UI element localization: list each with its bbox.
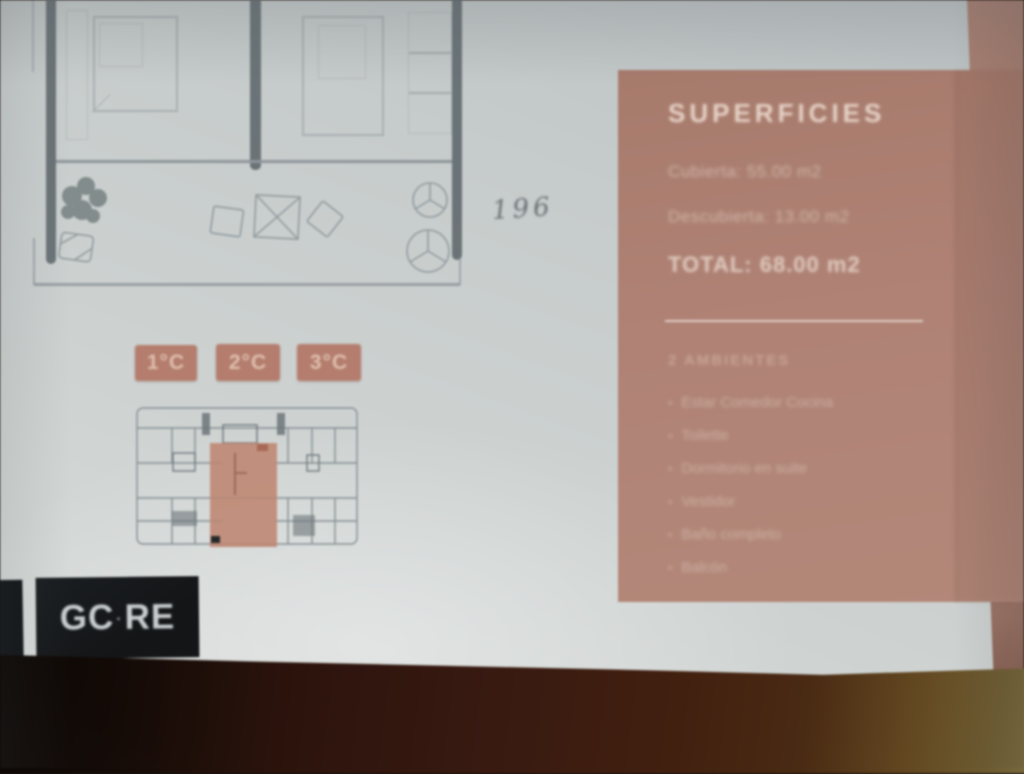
wall-center — [250, 0, 261, 170]
closet-left — [66, 10, 88, 140]
round-chair-icon — [413, 183, 447, 217]
keyplan-highlight-mark — [257, 444, 268, 451]
wardrobe-shelf-line2 — [409, 92, 451, 94]
paper-background: 196 1°C 2°C 3°C SUPERFICIES Cubierta: — [0, 0, 1024, 768]
square-chair-icon — [210, 206, 243, 237]
bed-left-pillow — [99, 23, 143, 67]
ambientes-heading: 2 AMBIENTES — [668, 352, 790, 369]
ambientes-item: • Baño completo — [668, 526, 781, 545]
bullet-icon: • — [668, 526, 672, 545]
area-row-total: TOTAL: 68.00 m2 — [668, 252, 861, 278]
panel-divider — [665, 320, 923, 322]
terrace-furniture-group — [30, 148, 470, 298]
keyplan-highlight-unit — [210, 443, 277, 547]
logo-separator-icon: · — [114, 610, 125, 628]
plant-icon — [61, 177, 107, 223]
bullet-icon: • — [668, 559, 672, 578]
photo-of-floorplan-page: 196 1°C 2°C 3°C SUPERFICIES Cubierta: — [0, 0, 1024, 774]
bullet-icon: • — [668, 394, 672, 413]
cube-chair-icon — [58, 232, 93, 262]
panel-fold-shadow — [955, 70, 1024, 602]
ambientes-item: • Dormitorio en suite — [668, 460, 807, 479]
area-row-cubierta: Cubierta: 55.00 m2 — [668, 162, 822, 182]
wardrobe-shelf-line — [409, 52, 451, 54]
ambientes-item: • Vestidor — [668, 493, 735, 512]
superficies-panel: SUPERFICIES Cubierta: 55.00 m2 Descubier… — [618, 70, 1024, 602]
bullet-icon: • — [668, 460, 672, 479]
logo-text: GC·RE — [60, 597, 176, 638]
bullet-icon: • — [668, 427, 672, 446]
keyplan — [135, 403, 360, 553]
x-table-icon — [254, 195, 300, 239]
panel-title: SUPERFICIES — [668, 98, 885, 129]
wood-table — [0, 640, 1024, 774]
area-row-descubierta: Descubierta: 13.00 m2 — [668, 207, 850, 227]
logo-block: GC·RE — [36, 576, 200, 659]
bed-right-pillow — [318, 25, 366, 79]
ambientes-item: • Toilette — [668, 427, 729, 446]
bullet-icon: • — [668, 493, 672, 512]
ambientes-item: • Balcón — [668, 559, 727, 578]
unit-badge-2c: 2°C — [216, 344, 280, 381]
round-chair-icon-2 — [407, 230, 449, 272]
handwritten-annotation: 196 — [491, 192, 555, 226]
keyplan-core-column2 — [277, 413, 285, 435]
keyplan-core-column — [202, 413, 210, 435]
ambientes-item: • Estar Comedor Cocina — [668, 394, 833, 413]
diamond-chair-icon — [307, 201, 343, 237]
keyplan-entry-dot — [211, 536, 220, 543]
wardrobe-right — [408, 12, 452, 134]
unit-badge-3c: 3°C — [297, 344, 361, 381]
unit-badge-1c: 1°C — [135, 345, 197, 381]
plan-outer-edge-line — [32, 0, 34, 72]
side-logo-block — [0, 580, 24, 657]
